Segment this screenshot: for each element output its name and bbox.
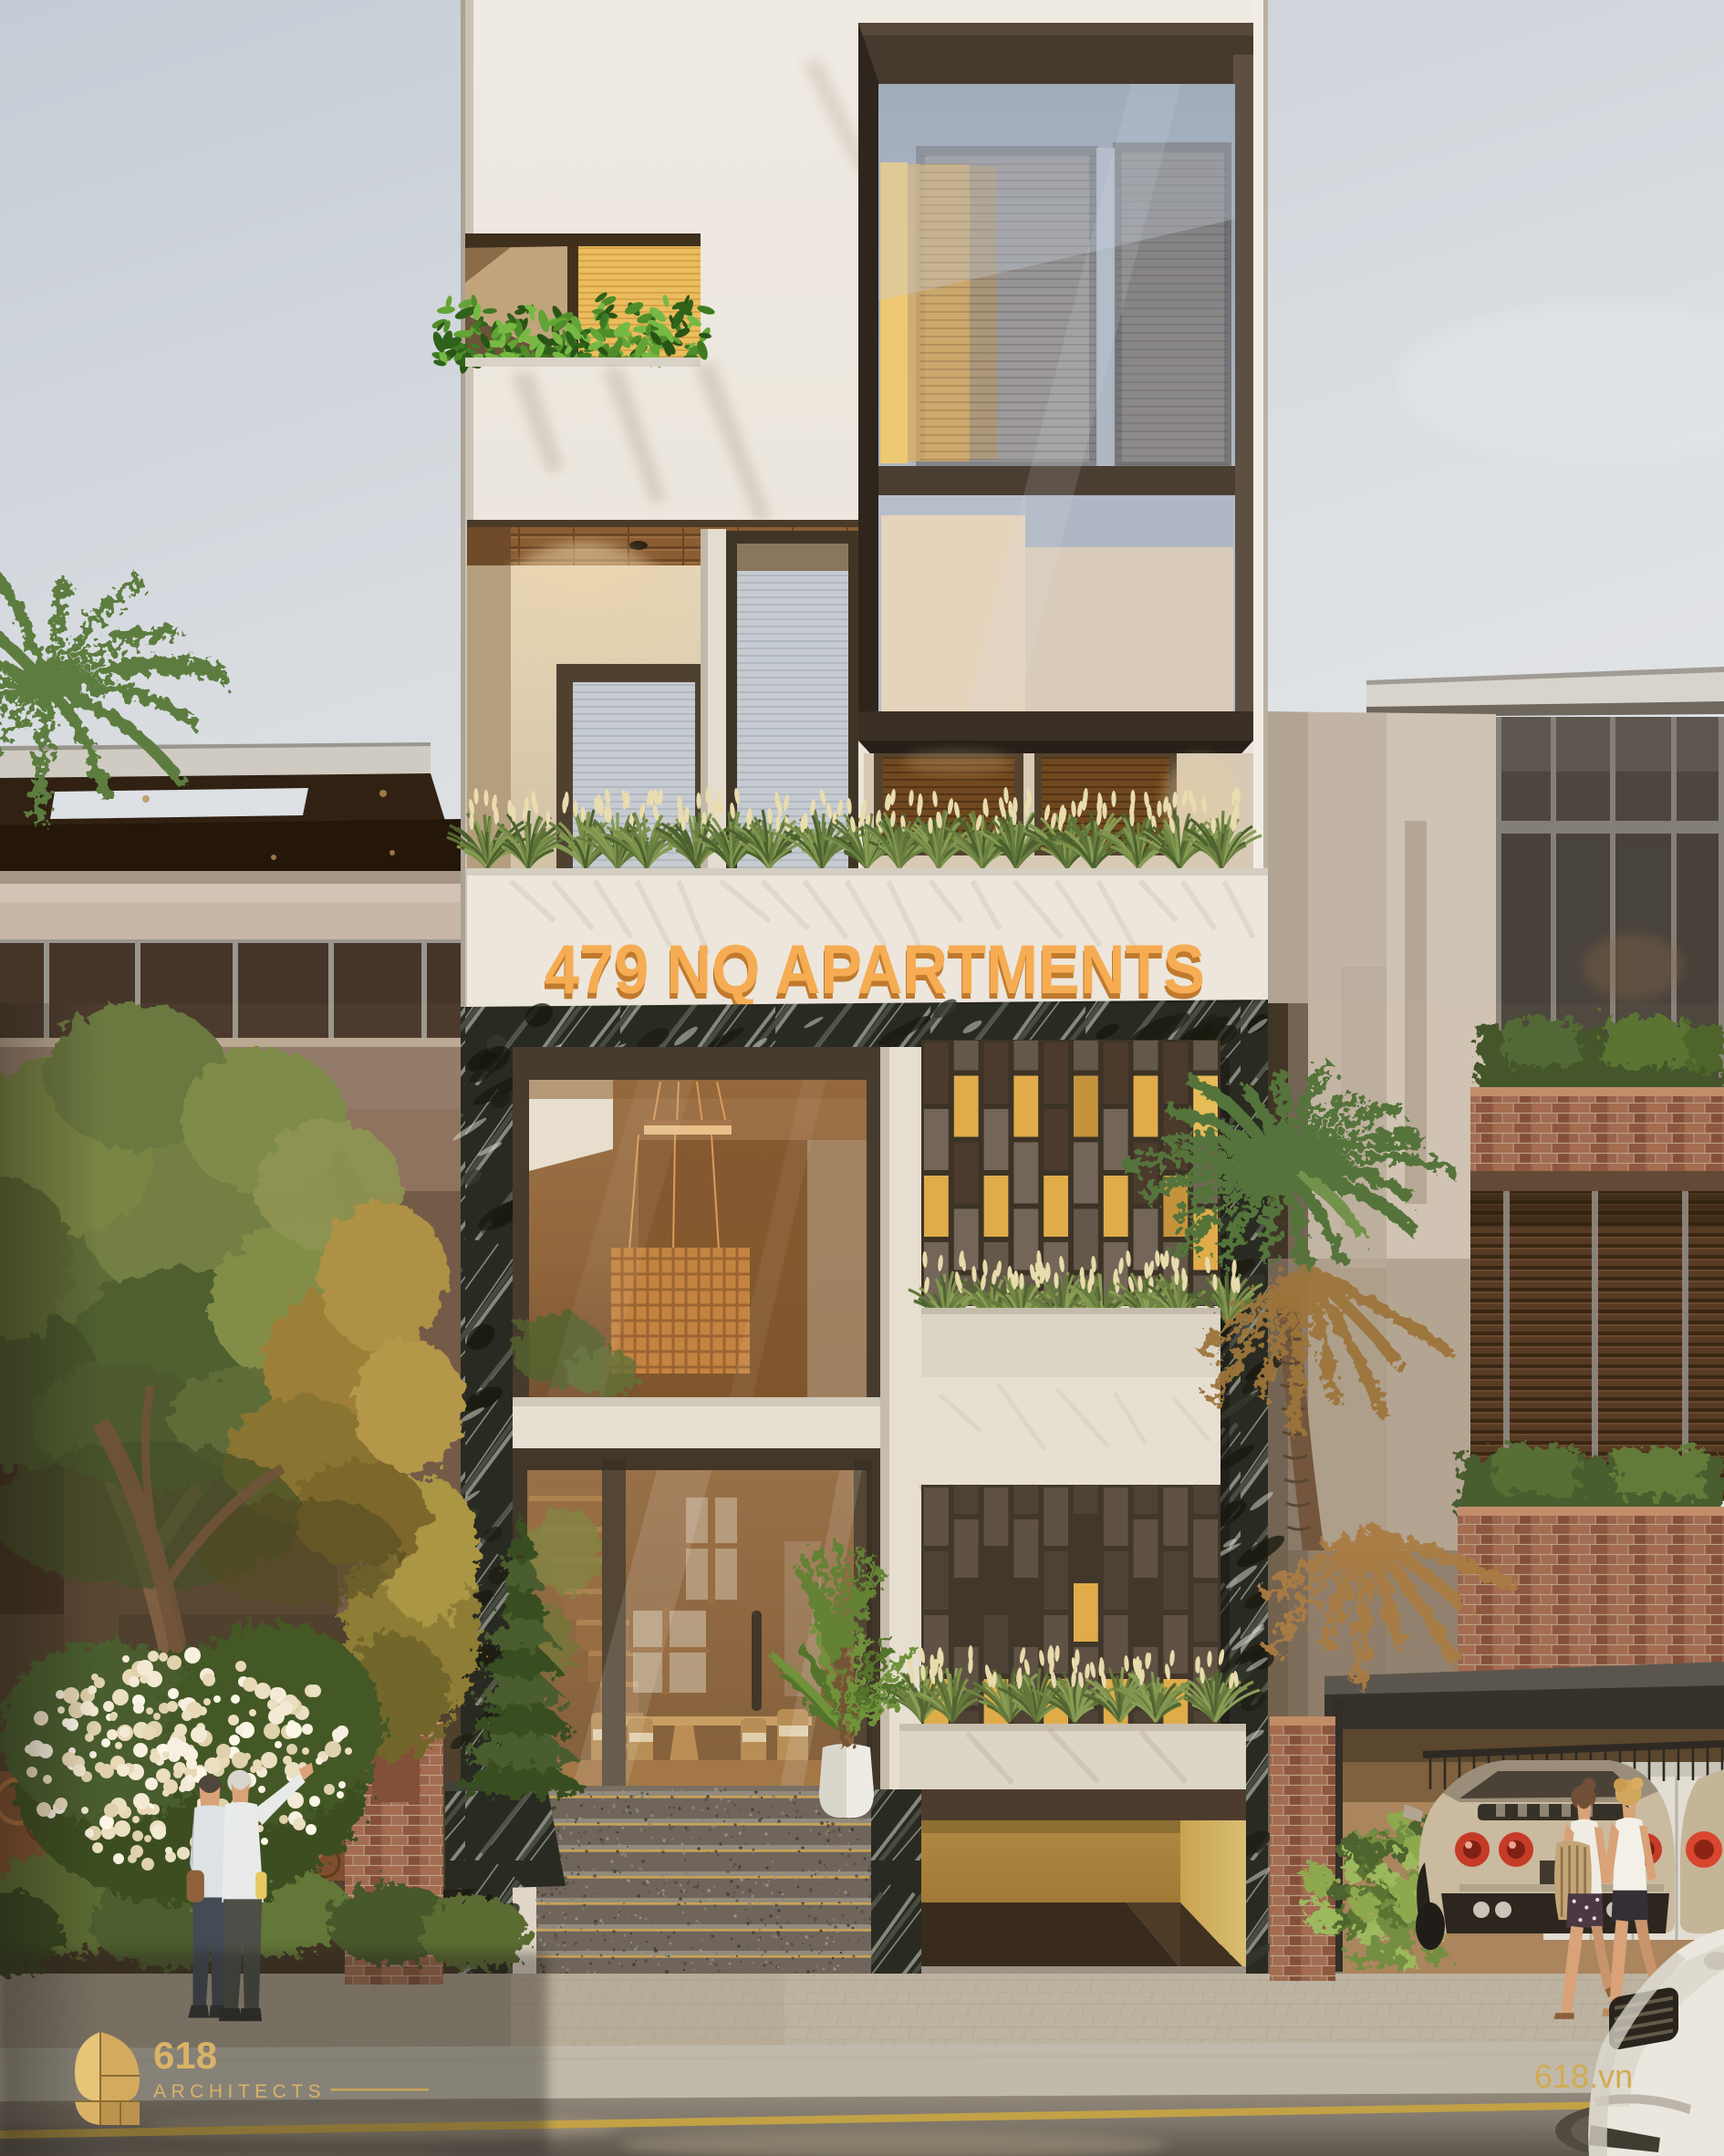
svg-text:618: 618 <box>153 2034 217 2077</box>
svg-text:ARCHITECTS: ARCHITECTS <box>153 2081 326 2102</box>
svg-text:479 NQ APARTMENTS: 479 NQ APARTMENTS <box>545 931 1205 1009</box>
svg-text:618.vn: 618.vn <box>1534 2058 1633 2095</box>
